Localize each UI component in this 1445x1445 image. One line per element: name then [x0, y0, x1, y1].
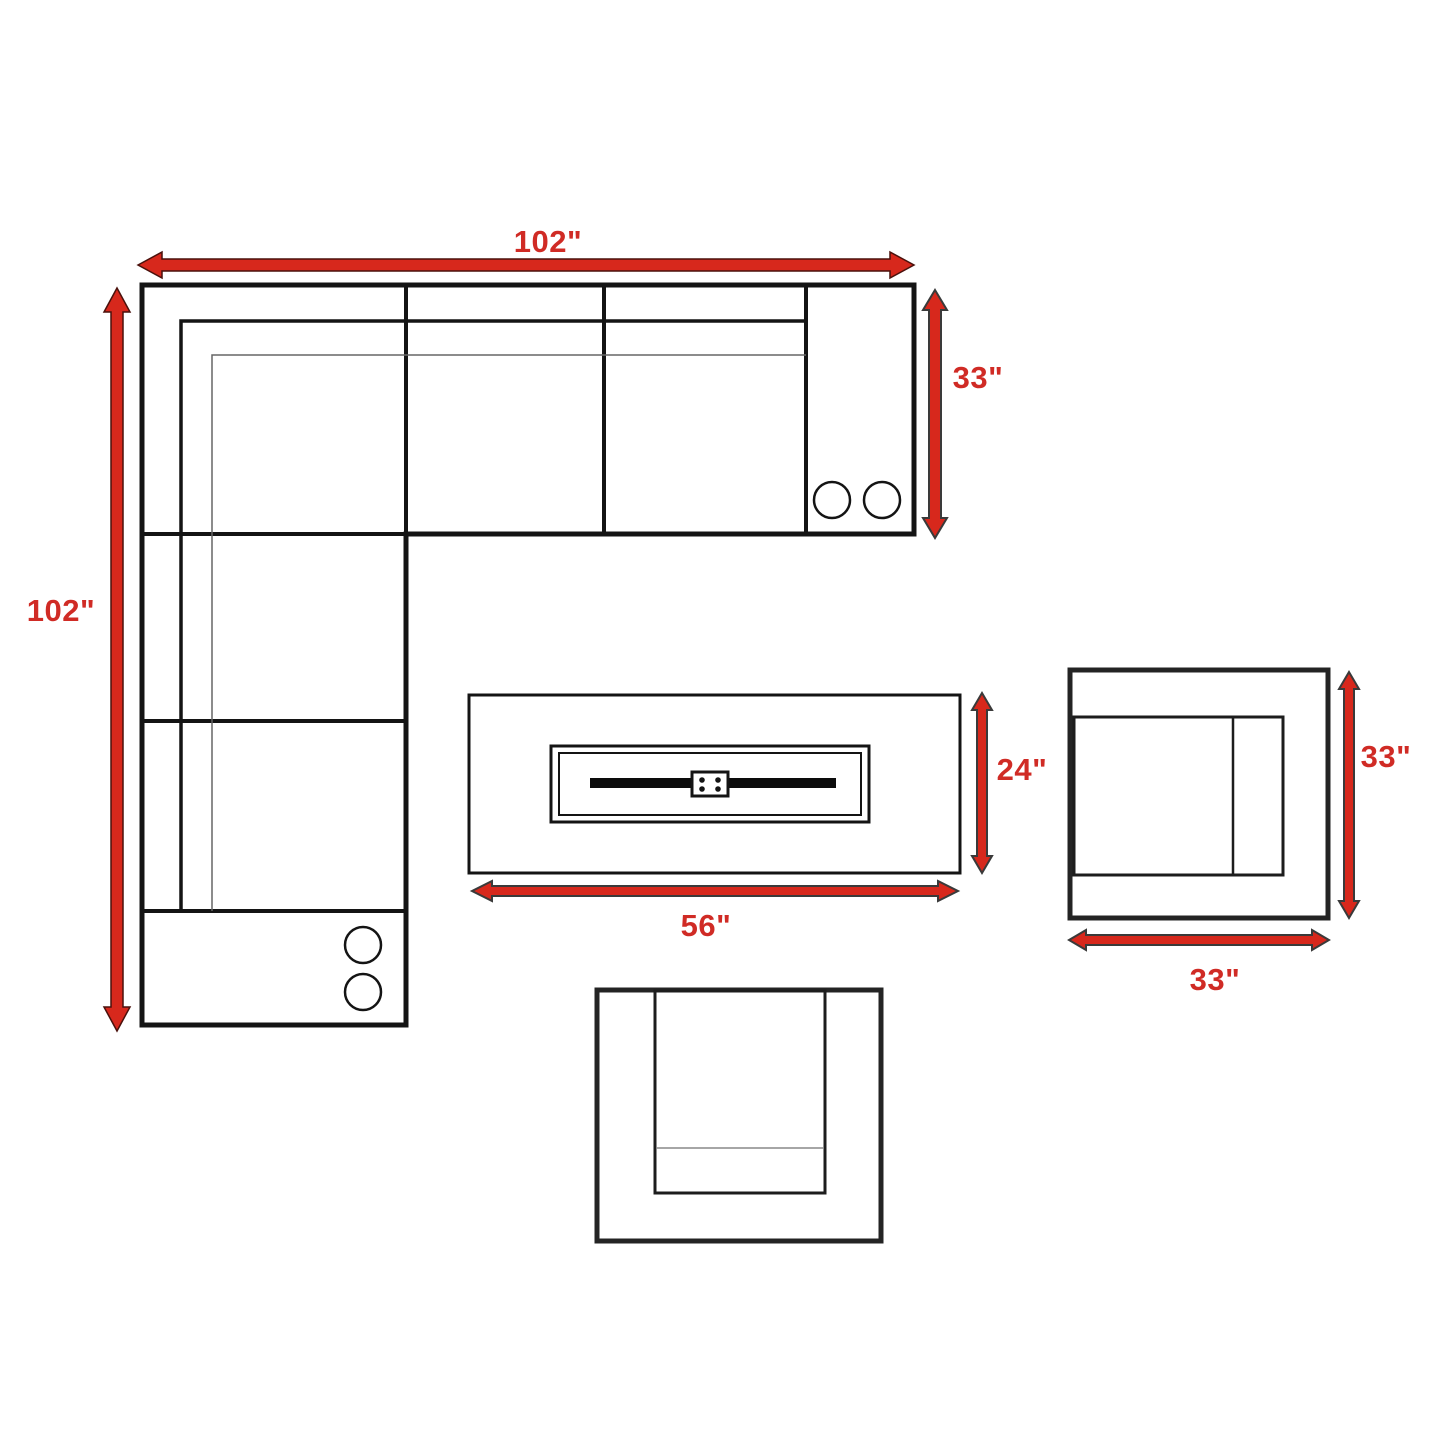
sectional-outline: [142, 285, 914, 1025]
side-chair-depth-label: 33": [1361, 739, 1412, 775]
igniter-bolt: [715, 786, 721, 792]
fire-pit-depth-arrow: [972, 693, 992, 873]
side-chair-depth-arrow: [1339, 672, 1359, 918]
cup-holder: [345, 927, 381, 963]
cup-holder: [864, 482, 900, 518]
side-chair-width-label: 33": [1190, 962, 1241, 998]
fire-pit-depth-label: 24": [997, 752, 1048, 788]
sectional-sofa: [142, 285, 914, 1025]
igniter-plate: [692, 772, 728, 796]
sectional-depth-label: 102": [27, 593, 95, 629]
igniter-bolt: [715, 777, 721, 783]
sectional-section-depth-label: 33": [953, 360, 1004, 396]
chair-seat: [1074, 717, 1283, 875]
side-chair-right: [1070, 670, 1328, 918]
cup-holder: [814, 482, 850, 518]
furniture-dimension-diagram: 102" 102" 33" 24" 56" 33" 33": [0, 0, 1445, 1445]
cup-holder: [345, 974, 381, 1010]
igniter-bolt: [699, 777, 705, 783]
igniter-bolt: [699, 786, 705, 792]
sectional-depth-arrow: [104, 288, 130, 1031]
fire-pit-width-label: 56": [681, 908, 732, 944]
side-chair-width-arrow: [1069, 930, 1329, 950]
fire-pit-table: [469, 695, 960, 873]
sectional-width-label: 102": [514, 224, 582, 260]
sectional-section-depth-arrow: [923, 290, 947, 538]
fire-pit-width-arrow: [472, 881, 958, 901]
diagram-drawing: [0, 0, 1445, 1445]
chair-seat: [655, 991, 825, 1193]
side-chair-bottom: [597, 990, 881, 1241]
